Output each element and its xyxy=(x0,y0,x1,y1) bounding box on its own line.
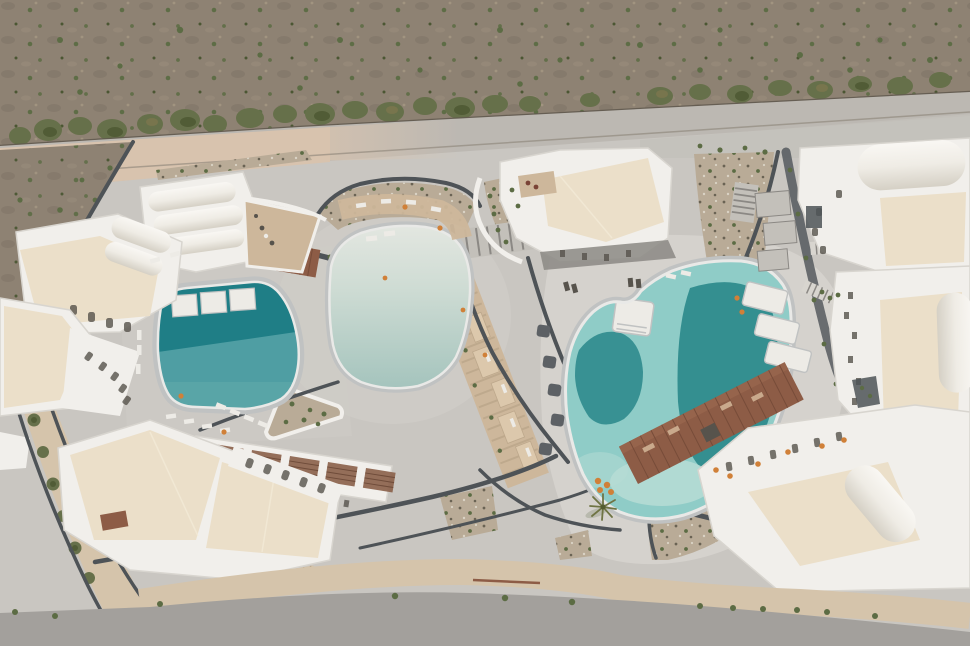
building-northeast xyxy=(798,138,970,272)
vault-roof-large xyxy=(856,138,967,191)
aerial-photo-svg: Aerial drone view of a white Cycladic re… xyxy=(0,0,970,646)
terrace-table xyxy=(264,234,268,238)
vault-roof xyxy=(936,292,970,393)
building-club-north xyxy=(475,148,676,270)
pergola-piece xyxy=(806,206,822,228)
aerial-photo: Aerial drone view of a white Cycladic re… xyxy=(0,0,970,646)
